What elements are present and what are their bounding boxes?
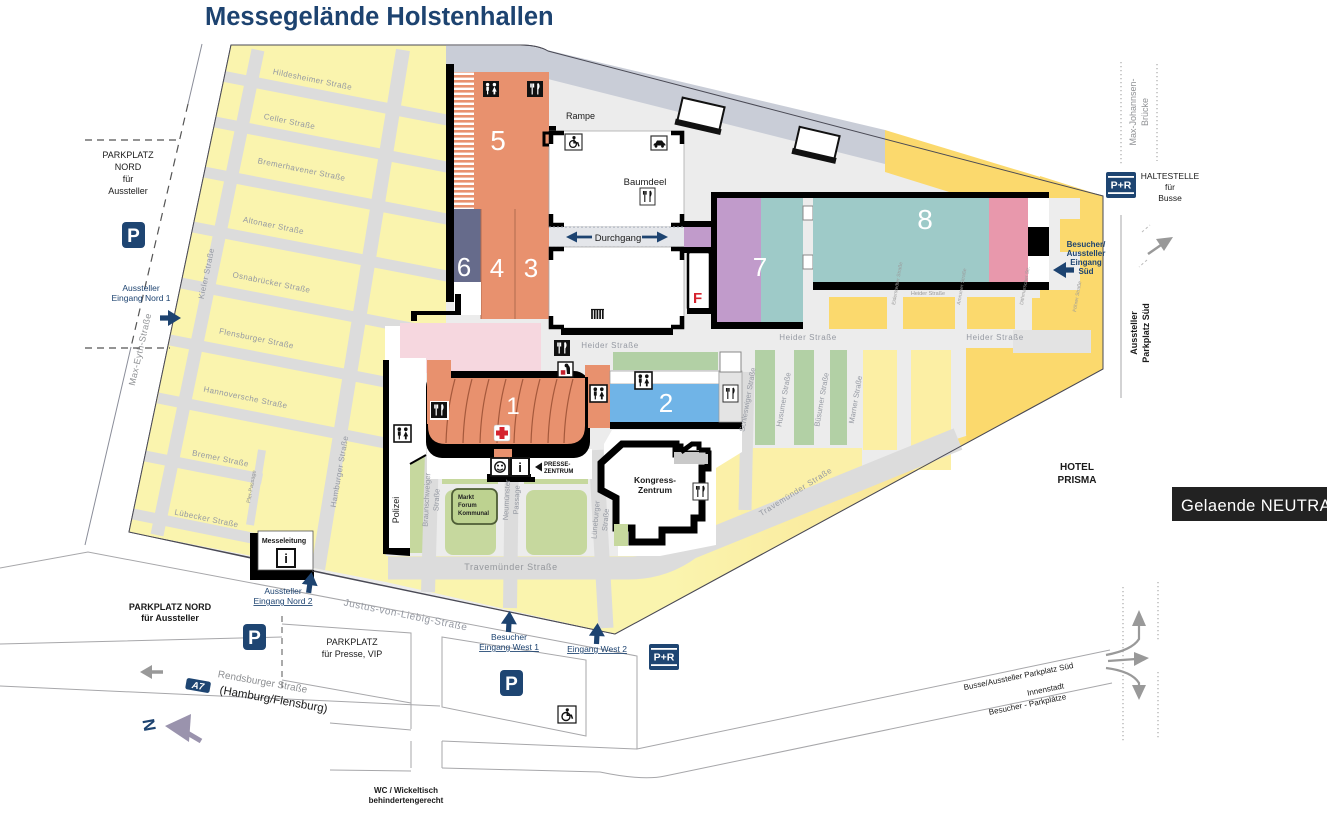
svg-text:PARKPLATZ NORD: PARKPLATZ NORD	[129, 602, 212, 612]
svg-text:Messeleitung: Messeleitung	[262, 538, 306, 545]
svg-text:HOTEL: HOTEL	[1060, 462, 1094, 473]
svg-text:Parkplatz Süd: Parkplatz Süd	[1141, 303, 1151, 363]
svg-text:Aussteller: Aussteller	[264, 586, 301, 596]
svg-text:Eingang Nord 1: Eingang Nord 1	[111, 293, 170, 303]
svg-text:i: i	[284, 551, 288, 566]
svg-text:Messegelände Holstenhallen: Messegelände Holstenhallen	[205, 3, 554, 31]
svg-text:Kommunal: Kommunal	[458, 511, 489, 517]
svg-text:Polizei: Polizei	[391, 497, 401, 524]
svg-text:Durchgang: Durchgang	[595, 233, 641, 244]
svg-text:Heider Straße: Heider Straße	[581, 341, 639, 350]
svg-text:Eingang: Eingang	[1070, 258, 1102, 267]
svg-text:Besucher/: Besucher/	[1067, 240, 1106, 249]
svg-text:Eingang West 2: Eingang West 2	[567, 644, 627, 654]
svg-text:PRESSE-: PRESSE-	[544, 462, 570, 468]
svg-text:Straße: Straße	[431, 488, 441, 511]
svg-text:PARKPLATZ: PARKPLATZ	[102, 150, 154, 160]
svg-text:Busse: Busse	[1158, 193, 1182, 203]
svg-text:Travemünder Straße: Travemünder Straße	[464, 562, 558, 572]
svg-text:2: 2	[659, 388, 673, 418]
svg-text:6: 6	[457, 252, 471, 282]
svg-text:Besucher: Besucher	[491, 632, 527, 642]
svg-text:HALTESTELLE: HALTESTELLE	[1141, 171, 1200, 181]
svg-text:3: 3	[524, 253, 538, 283]
svg-text:Max-Johannsen-: Max-Johannsen-	[1128, 78, 1138, 145]
svg-text:5: 5	[490, 125, 506, 156]
svg-text:N: N	[139, 717, 160, 732]
svg-text:7: 7	[753, 252, 767, 282]
svg-text:1: 1	[506, 393, 519, 420]
svg-text:Heider Straße: Heider Straße	[779, 333, 837, 342]
svg-text:WC / Wickeltisch: WC / Wickeltisch	[374, 786, 438, 795]
svg-text:4: 4	[490, 253, 504, 283]
svg-text:NORD: NORD	[115, 162, 142, 172]
svg-text:Kongress-: Kongress-	[634, 475, 676, 485]
svg-text:Rampe: Rampe	[566, 111, 595, 121]
svg-text:Aussteller: Aussteller	[108, 186, 148, 196]
svg-text:Aussteller: Aussteller	[1067, 249, 1106, 258]
svg-text:für Aussteller: für Aussteller	[141, 613, 199, 623]
svg-text:F: F	[693, 290, 702, 307]
svg-text:Aussteller: Aussteller	[1129, 311, 1139, 355]
svg-text:8: 8	[917, 204, 933, 235]
svg-text:ZENTRUM: ZENTRUM	[544, 469, 573, 475]
svg-text:PARKPLATZ: PARKPLATZ	[326, 637, 378, 647]
svg-text:Justus-von-Liebig-Straße: Justus-von-Liebig-Straße	[343, 598, 469, 634]
svg-text:Aussteller: Aussteller	[122, 283, 159, 293]
svg-text:für Presse, VIP: für Presse, VIP	[322, 649, 383, 659]
svg-text:Zentrum: Zentrum	[638, 485, 672, 495]
svg-text:Eingang West 1: Eingang West 1	[479, 642, 539, 652]
svg-text:Baumdeel: Baumdeel	[624, 177, 667, 188]
svg-text:Markt: Markt	[458, 495, 474, 501]
svg-text:für: für	[123, 174, 134, 184]
svg-text:Forum: Forum	[458, 503, 477, 509]
svg-text:PRISMA: PRISMA	[1058, 475, 1097, 486]
svg-text:Gelaende NEUTRAL: Gelaende NEUTRAL	[1181, 497, 1327, 515]
svg-text:Heider Straße: Heider Straße	[966, 333, 1024, 342]
svg-text:Passage: Passage	[511, 485, 522, 515]
svg-text:für: für	[1165, 182, 1175, 192]
svg-text:behindertengerecht: behindertengerecht	[369, 796, 444, 805]
svg-text:Süd: Süd	[1078, 267, 1093, 276]
svg-text:Brücke: Brücke	[1140, 98, 1150, 126]
svg-text:Eingang Nord 2: Eingang Nord 2	[253, 596, 312, 606]
svg-text:Heider Straße: Heider Straße	[911, 291, 945, 297]
